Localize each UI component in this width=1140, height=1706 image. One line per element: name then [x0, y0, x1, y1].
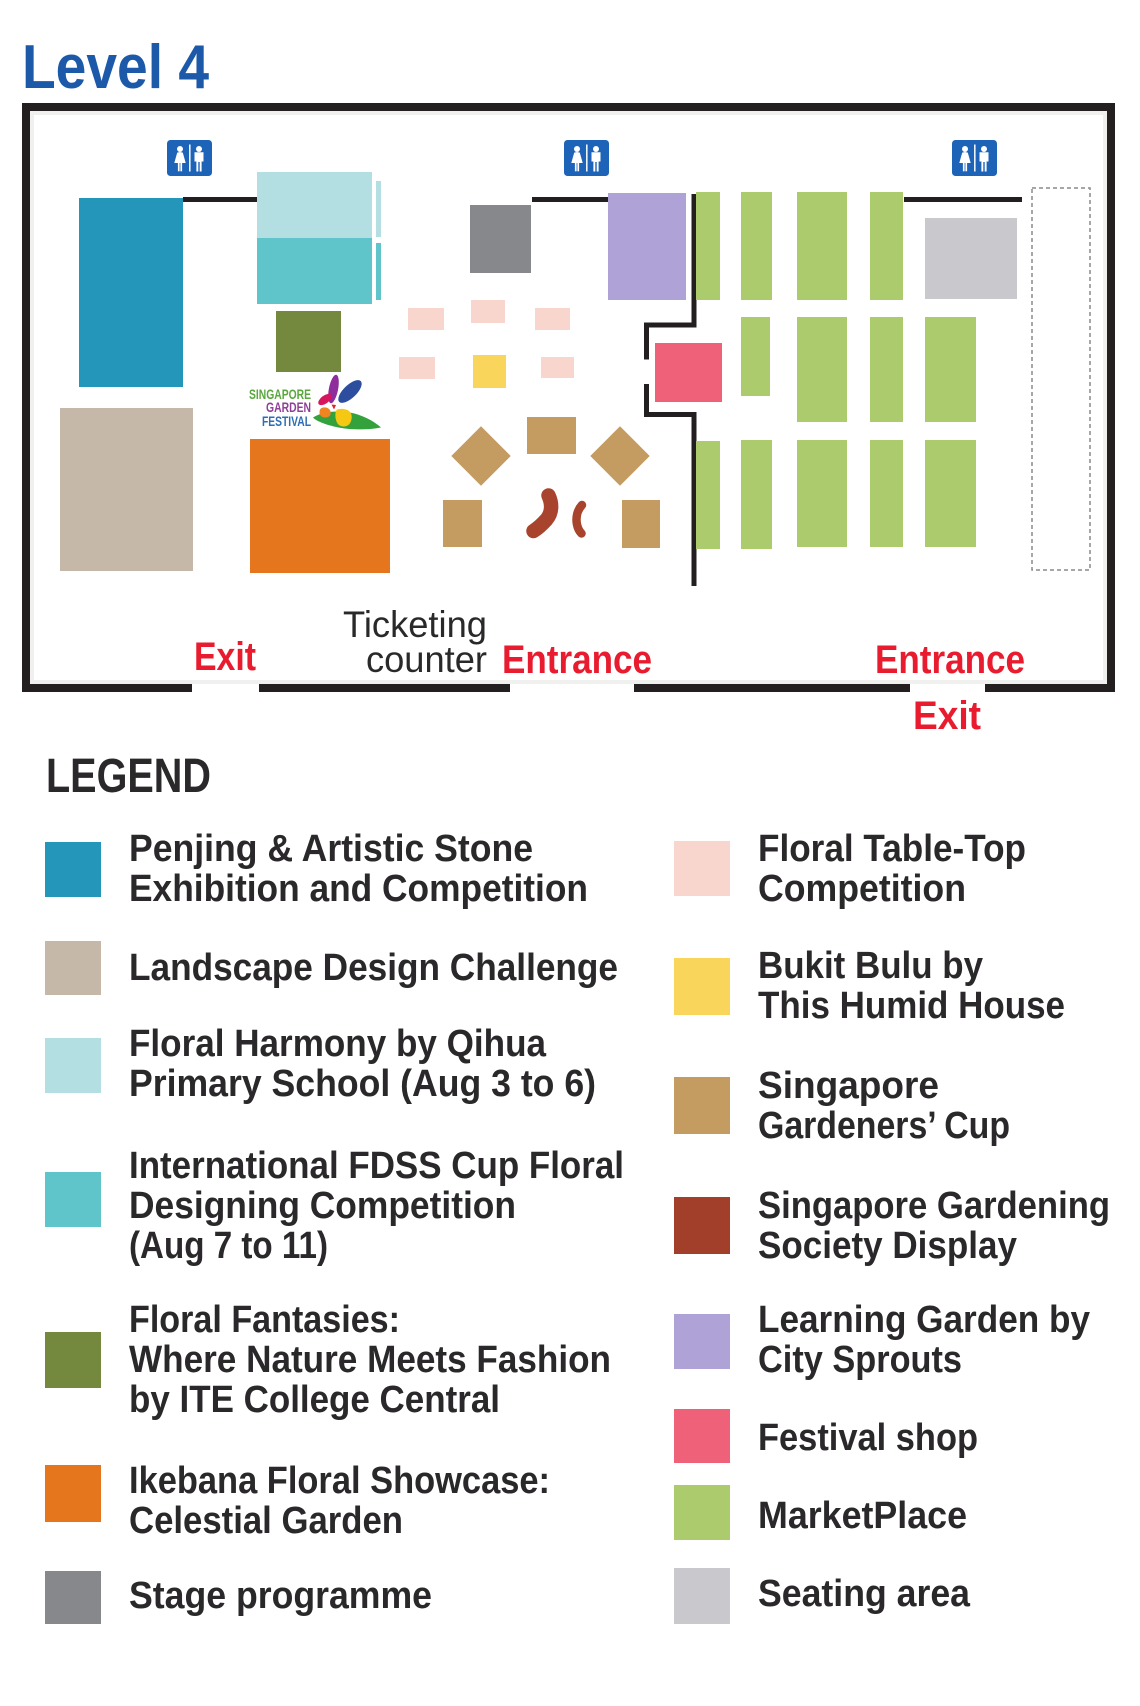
svg-text:Floral Fantasies:: Floral Fantasies: [129, 1299, 400, 1341]
svg-text:Gardeners’ Cup: Gardeners’ Cup [758, 1105, 1010, 1147]
svg-text:by ITE College Central: by ITE College Central [129, 1379, 500, 1421]
svg-text:Landscape Design Challenge: Landscape Design Challenge [129, 947, 618, 989]
svg-text:Exit: Exit [913, 694, 981, 738]
svg-text:Seating area: Seating area [758, 1573, 971, 1615]
svg-text:Ikebana Floral Showcase:: Ikebana Floral Showcase: [129, 1460, 550, 1502]
svg-text:Bukit Bulu by: Bukit Bulu by [758, 945, 983, 987]
svg-text:Level 4: Level 4 [22, 33, 209, 102]
svg-text:Penjing & Artistic Stone: Penjing & Artistic Stone [129, 828, 533, 870]
svg-text:Floral Table-Top: Floral Table-Top [758, 828, 1026, 870]
svg-text:Entrance: Entrance [502, 638, 652, 682]
svg-text:Exhibition and Competition: Exhibition and Competition [129, 868, 588, 910]
svg-text:Learning Garden by: Learning Garden by [758, 1299, 1090, 1341]
svg-text:This Humid House: This Humid House [758, 985, 1065, 1027]
svg-text:Singapore Gardening: Singapore Gardening [758, 1185, 1110, 1227]
svg-text:Floral Harmony by Qihua: Floral Harmony by Qihua [129, 1023, 547, 1065]
svg-text:Designing Competition: Designing Competition [129, 1185, 516, 1227]
svg-text:City Sprouts: City Sprouts [758, 1339, 962, 1381]
svg-text:Primary School (Aug 3 to 6): Primary School (Aug 3 to 6) [129, 1063, 596, 1105]
svg-text:Entrance: Entrance [875, 638, 1025, 682]
svg-text:Competition: Competition [758, 868, 966, 910]
svg-text:Stage programme: Stage programme [129, 1575, 432, 1617]
svg-text:(Aug 7 to 11): (Aug 7 to 11) [129, 1225, 328, 1267]
svg-text:MarketPlace: MarketPlace [758, 1495, 967, 1537]
svg-text:counter: counter [366, 639, 487, 680]
svg-text:Celestial Garden: Celestial Garden [129, 1500, 403, 1542]
svg-text:Where Nature Meets Fashion: Where Nature Meets Fashion [129, 1339, 611, 1381]
svg-text:FESTIVAL: FESTIVAL [262, 413, 311, 429]
svg-text:Singapore: Singapore [758, 1065, 939, 1107]
svg-text:International FDSS Cup Floral: International FDSS Cup Floral [129, 1145, 624, 1187]
svg-text:Exit: Exit [194, 635, 256, 679]
svg-text:Society Display: Society Display [758, 1225, 1017, 1267]
svg-text:LEGEND: LEGEND [46, 750, 211, 803]
svg-text:Festival shop: Festival shop [758, 1417, 978, 1459]
